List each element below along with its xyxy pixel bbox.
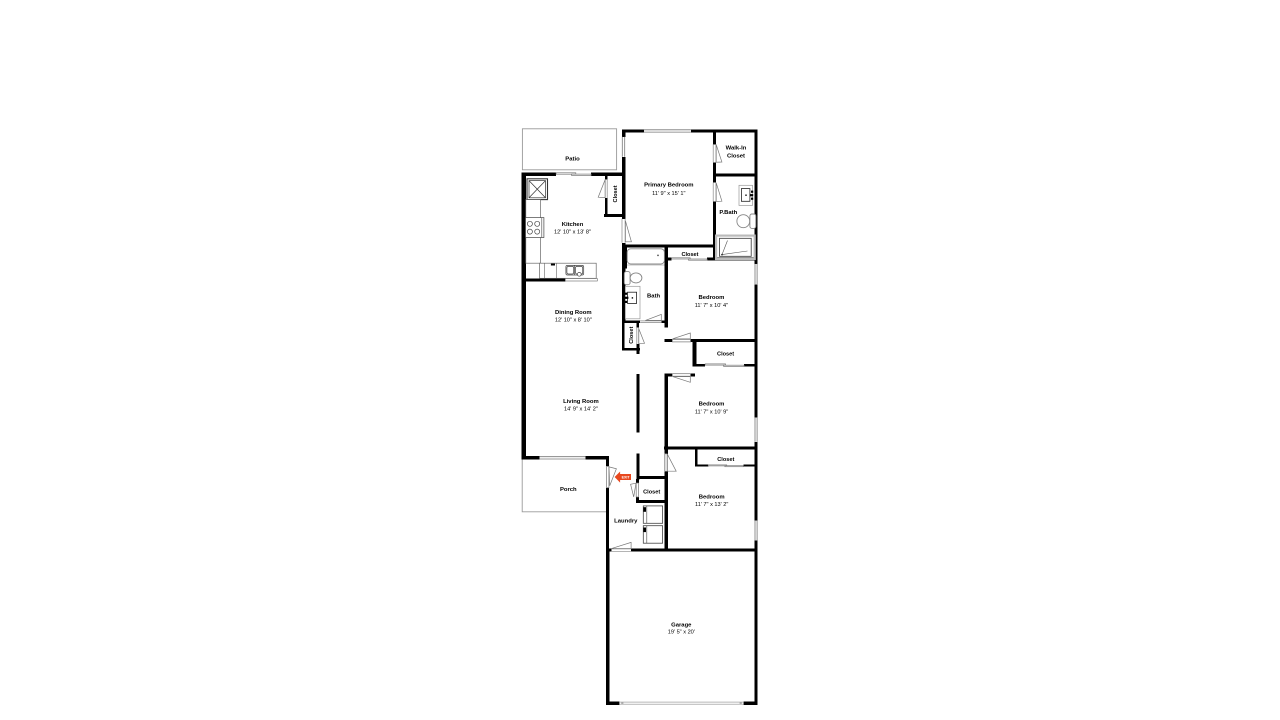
svg-text:Dining Room: Dining Room bbox=[555, 310, 592, 316]
svg-text:Closet: Closet bbox=[717, 352, 734, 358]
svg-text:Bedroom: Bedroom bbox=[699, 494, 725, 500]
svg-text:EXIT: EXIT bbox=[622, 475, 631, 479]
svg-text:11' 7" x 13' 2": 11' 7" x 13' 2" bbox=[695, 502, 728, 508]
svg-text:Closet: Closet bbox=[613, 185, 619, 202]
svg-text:Garage: Garage bbox=[671, 622, 692, 628]
svg-text:Primary Bedroom: Primary Bedroom bbox=[644, 182, 693, 188]
svg-text:Walk-In: Walk-In bbox=[726, 145, 747, 151]
svg-text:Closet: Closet bbox=[681, 252, 698, 258]
svg-text:P.Bath: P.Bath bbox=[719, 210, 737, 216]
svg-text:19' 5" x 20': 19' 5" x 20' bbox=[668, 630, 695, 636]
svg-text:12' 10" x 13' 8": 12' 10" x 13' 8" bbox=[554, 229, 591, 235]
svg-text:Kitchen: Kitchen bbox=[562, 222, 584, 228]
svg-text:Laundry: Laundry bbox=[614, 519, 638, 525]
svg-text:11' 7" x 10' 4": 11' 7" x 10' 4" bbox=[695, 303, 728, 309]
svg-text:Closet: Closet bbox=[727, 153, 745, 159]
svg-text:Bath: Bath bbox=[647, 294, 660, 300]
svg-text:Bedroom: Bedroom bbox=[699, 402, 725, 408]
svg-text:Patio: Patio bbox=[565, 156, 580, 162]
svg-text:Closet: Closet bbox=[643, 489, 660, 495]
svg-text:Bedroom: Bedroom bbox=[698, 295, 724, 301]
svg-text:11' 9" x 15' 1": 11' 9" x 15' 1" bbox=[652, 191, 685, 197]
svg-text:Porch: Porch bbox=[560, 487, 577, 493]
svg-text:12' 10" x 8' 10": 12' 10" x 8' 10" bbox=[555, 318, 592, 324]
svg-text:Closet: Closet bbox=[717, 457, 734, 463]
svg-text:14' 9" x 14' 2": 14' 9" x 14' 2" bbox=[564, 407, 598, 413]
svg-text:Living Room: Living Room bbox=[563, 399, 599, 405]
svg-text:11' 7" x 10' 9": 11' 7" x 10' 9" bbox=[695, 409, 728, 415]
svg-text:Closet: Closet bbox=[629, 327, 635, 344]
